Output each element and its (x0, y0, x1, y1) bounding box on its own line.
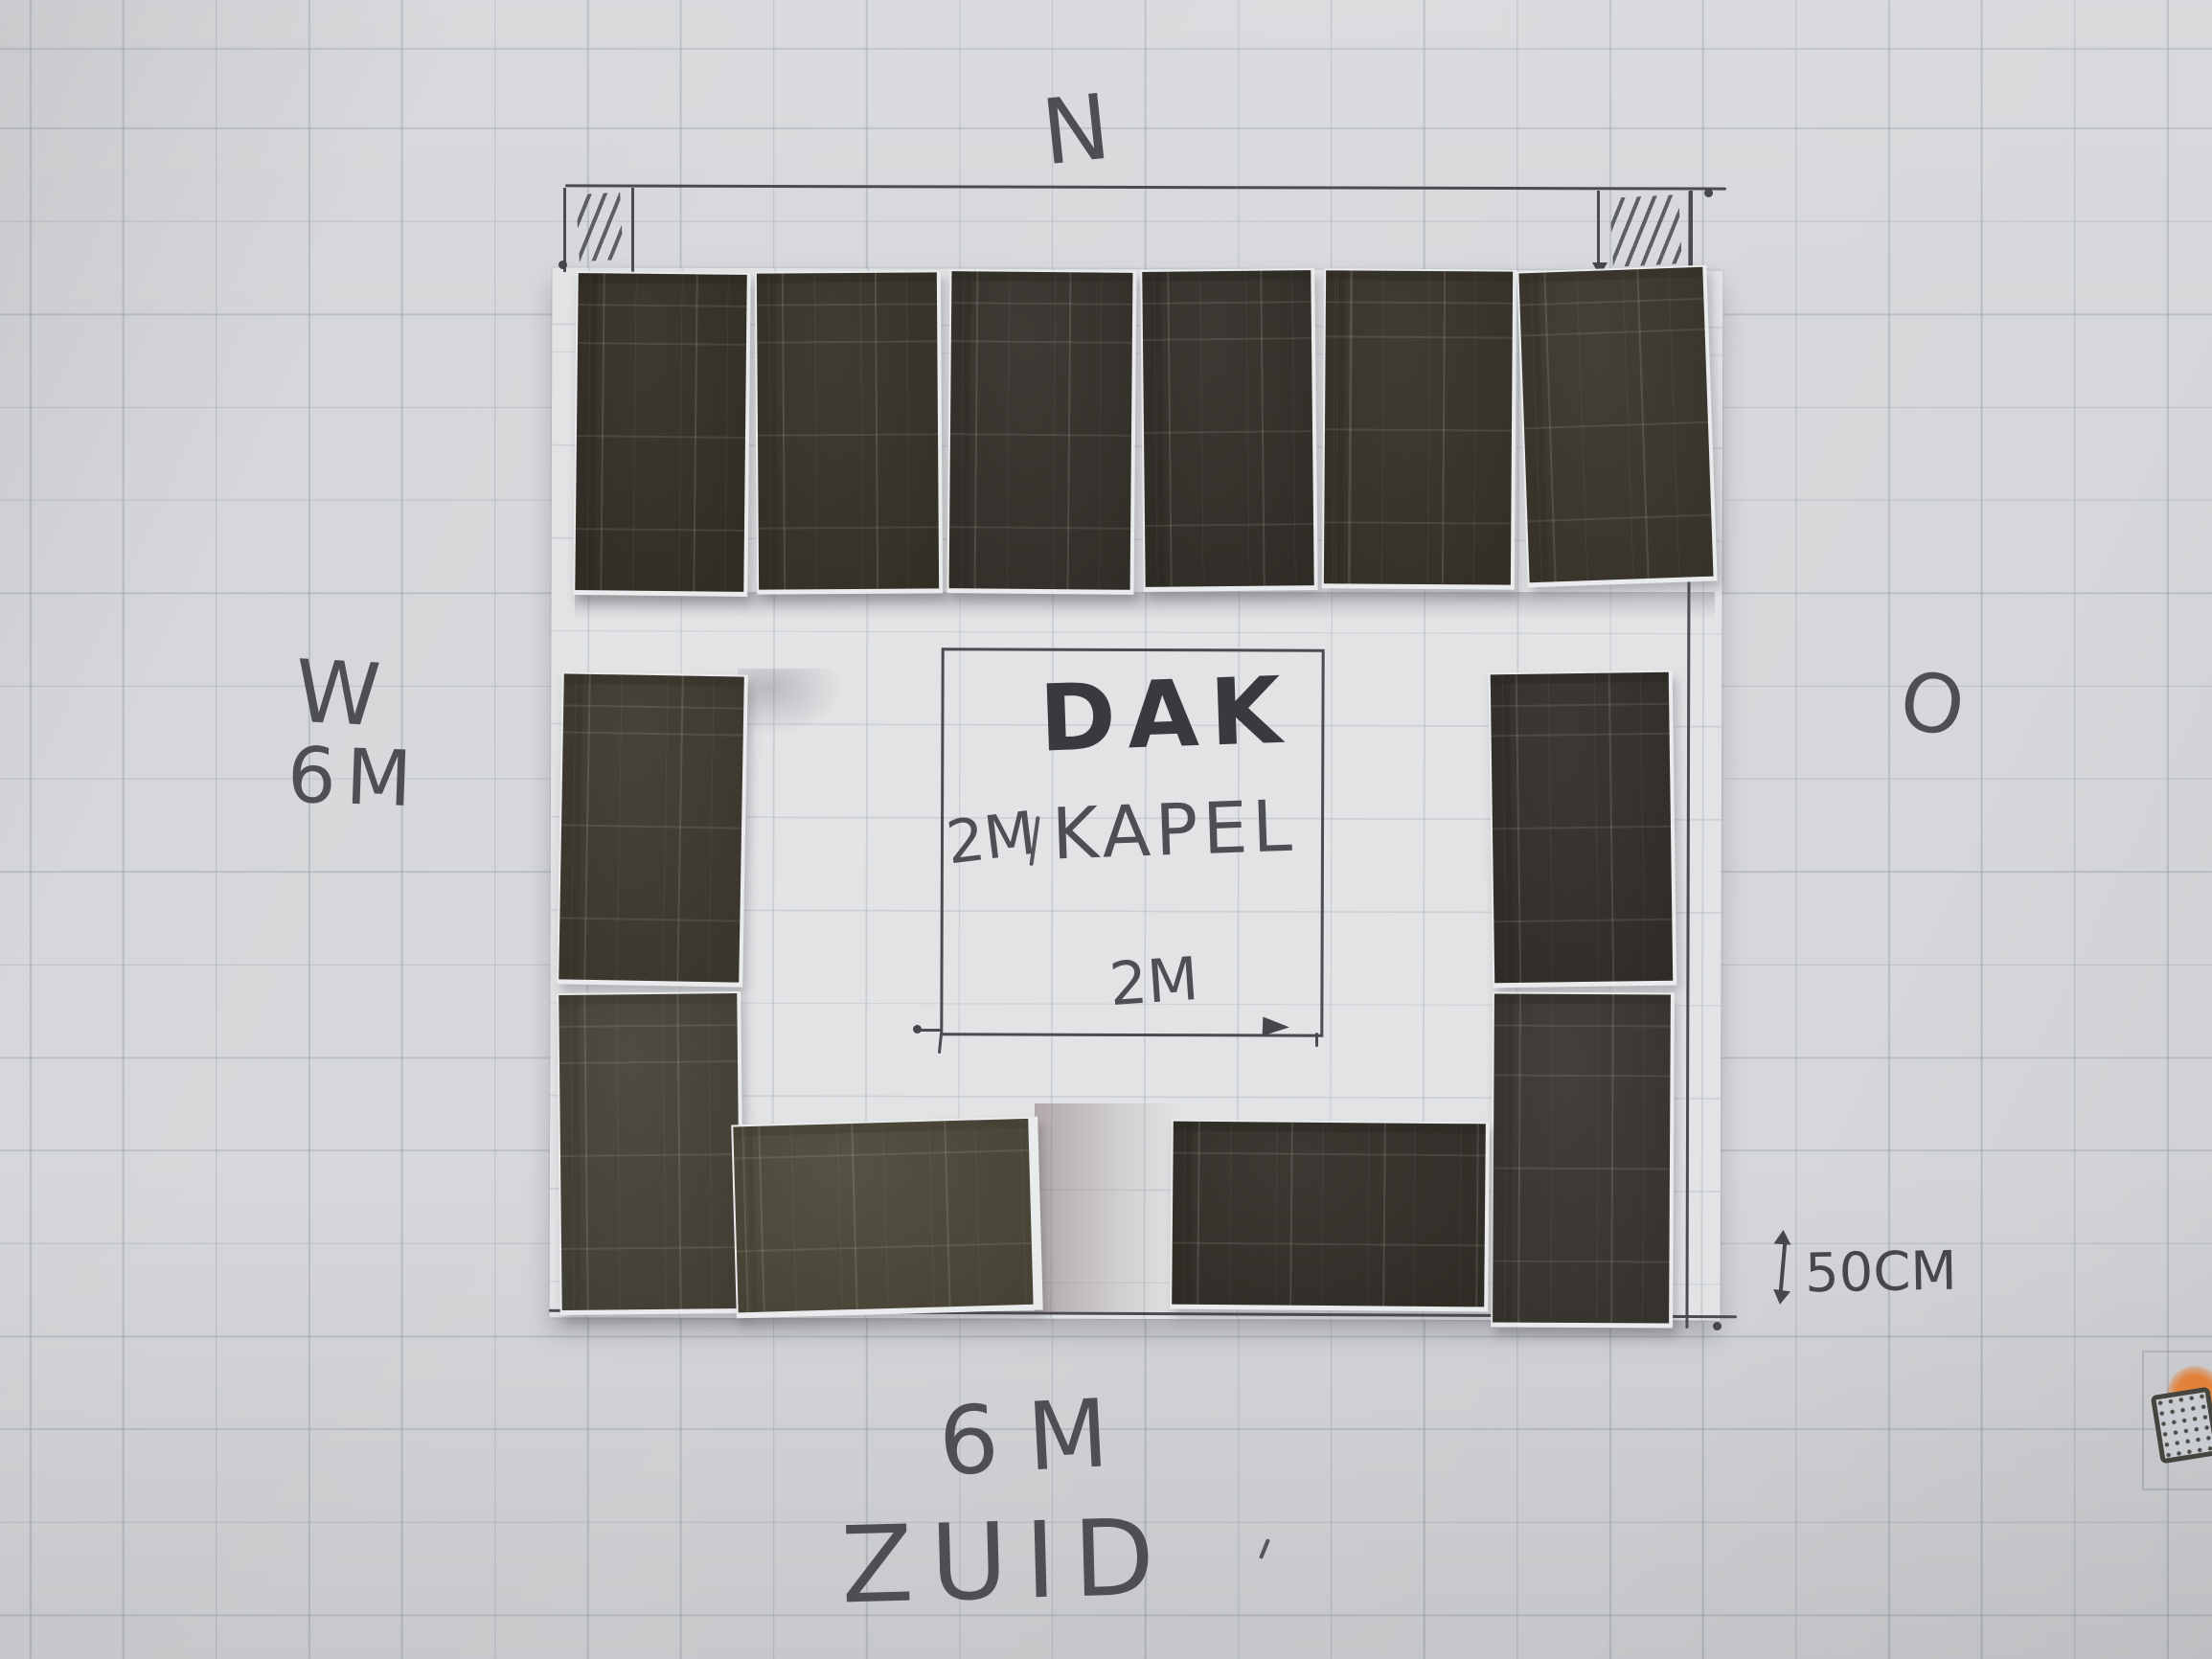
pencil-dot (1704, 189, 1713, 197)
solar-panel (573, 271, 751, 597)
solar-panel-surface (559, 673, 744, 982)
stray-pencil-mark (1259, 1538, 1270, 1559)
west-dimension-label: 6M (285, 731, 422, 825)
solar-panel-surface (1518, 267, 1713, 583)
solar-panel-surface (1491, 672, 1673, 984)
hatch-marks-icon (1609, 194, 1682, 267)
solar-panel-surface (1142, 270, 1313, 587)
solar-panel-surface (733, 1119, 1033, 1313)
solar-panel (947, 269, 1137, 595)
solar-panel-surface (949, 271, 1133, 590)
solar-panel-surface (757, 272, 939, 589)
solar-panel (1491, 992, 1675, 1329)
compass-north-label: N (1037, 76, 1114, 187)
solar-panel (1170, 1120, 1490, 1312)
edge-offset-label: 50CM (1804, 1240, 1957, 1306)
solar-panel-surface (575, 273, 746, 592)
pencil-dot (1713, 1322, 1722, 1330)
solar-panel (755, 270, 943, 594)
solar-panel (1322, 268, 1516, 589)
dormer-label-line2: KAPEL (1051, 785, 1298, 876)
pencil-tick (1315, 1033, 1318, 1047)
dimension-arrowhead-icon (1263, 1017, 1290, 1037)
solar-panel (731, 1117, 1043, 1319)
solar-panel-surface (1493, 994, 1671, 1324)
arrow-shaft (1778, 1238, 1787, 1297)
solar-panel (557, 991, 744, 1315)
dormer-label-line1: DAK (1038, 656, 1294, 772)
compass-south-label: ZUID (839, 1496, 1173, 1627)
dimension-end-box-left (563, 188, 634, 272)
solar-panel (557, 671, 748, 987)
dormer-height-label: 2M (1107, 943, 1201, 1019)
hatch-marks-icon (576, 193, 624, 261)
solar-panel (1516, 265, 1717, 588)
solar-panel-surface (1172, 1122, 1486, 1307)
solar-panel (1140, 268, 1318, 592)
solar-panel-grid-icon (2151, 1387, 2212, 1465)
solar-panel-surface (559, 993, 740, 1310)
top-dimension-line (565, 184, 1726, 190)
pencil-dot (913, 1025, 922, 1034)
south-dimension-label: 6M (936, 1378, 1140, 1498)
solar-panel-surface (1324, 270, 1513, 584)
pencil-dot (559, 261, 567, 269)
solar-panel (1489, 670, 1677, 989)
double-arrow-icon (1772, 1232, 1793, 1303)
compass-east-label: O (1894, 652, 1972, 755)
photo-roof-plan: N W 6M O DAK 2M KAPEL 2M 50CM 6M ZUID (0, 0, 2212, 1659)
dormer-width-label: 2M (943, 798, 1039, 878)
